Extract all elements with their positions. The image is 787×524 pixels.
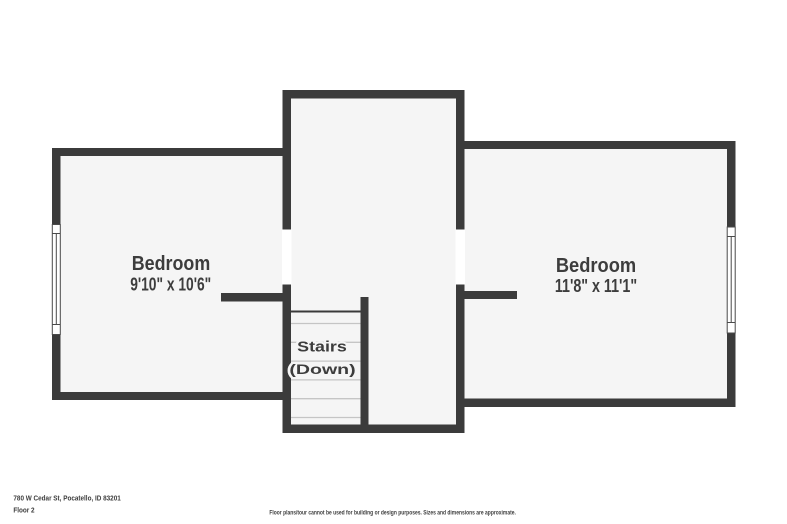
svg-text:11'8" x 11'1": 11'8" x 11'1": [555, 276, 637, 296]
svg-text:Floor plans/tour cannot be use: Floor plans/tour cannot be used for buil…: [269, 510, 516, 517]
svg-text:9'10" x 10'6": 9'10" x 10'6": [130, 275, 211, 295]
svg-text:Bedroom: Bedroom: [132, 253, 211, 275]
svg-text:Bedroom: Bedroom: [556, 255, 636, 277]
svg-text:Floor 2: Floor 2: [13, 506, 34, 515]
svg-text:780 W Cedar St, Pocatello, ID: 780 W Cedar St, Pocatello, ID 83201: [13, 494, 120, 503]
svg-text:Stairs: Stairs: [297, 339, 347, 356]
svg-text:(Down): (Down): [289, 361, 355, 377]
